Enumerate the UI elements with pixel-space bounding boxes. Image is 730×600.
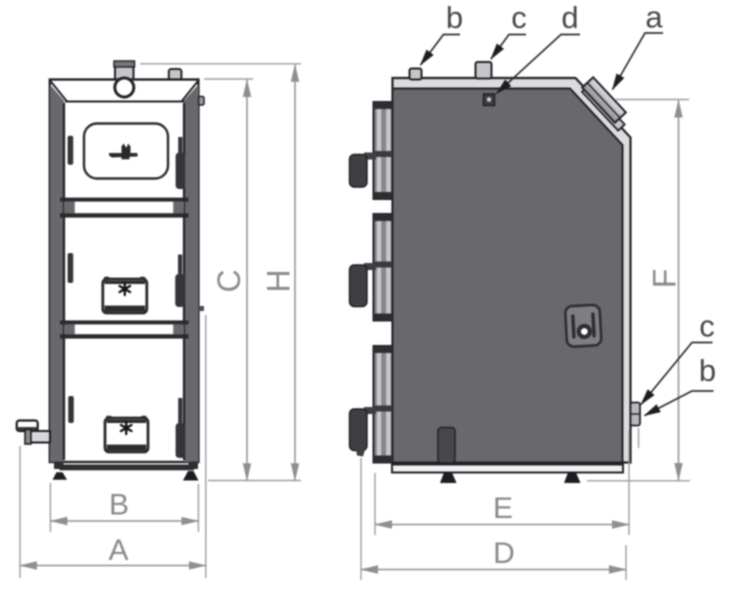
svg-text:c: c (699, 309, 715, 344)
svg-text:D: D (493, 537, 515, 570)
svg-text:b: b (699, 353, 716, 388)
svg-text:c: c (511, 0, 527, 35)
svg-text:C: C (211, 269, 247, 292)
svg-text:E: E (493, 492, 513, 525)
svg-text:a: a (645, 0, 663, 35)
svg-text:B: B (109, 489, 129, 522)
svg-text:F: F (647, 269, 683, 289)
svg-text:A: A (108, 534, 128, 567)
svg-text:d: d (561, 0, 578, 35)
svg-text:b: b (446, 0, 463, 35)
svg-text:H: H (261, 269, 297, 292)
